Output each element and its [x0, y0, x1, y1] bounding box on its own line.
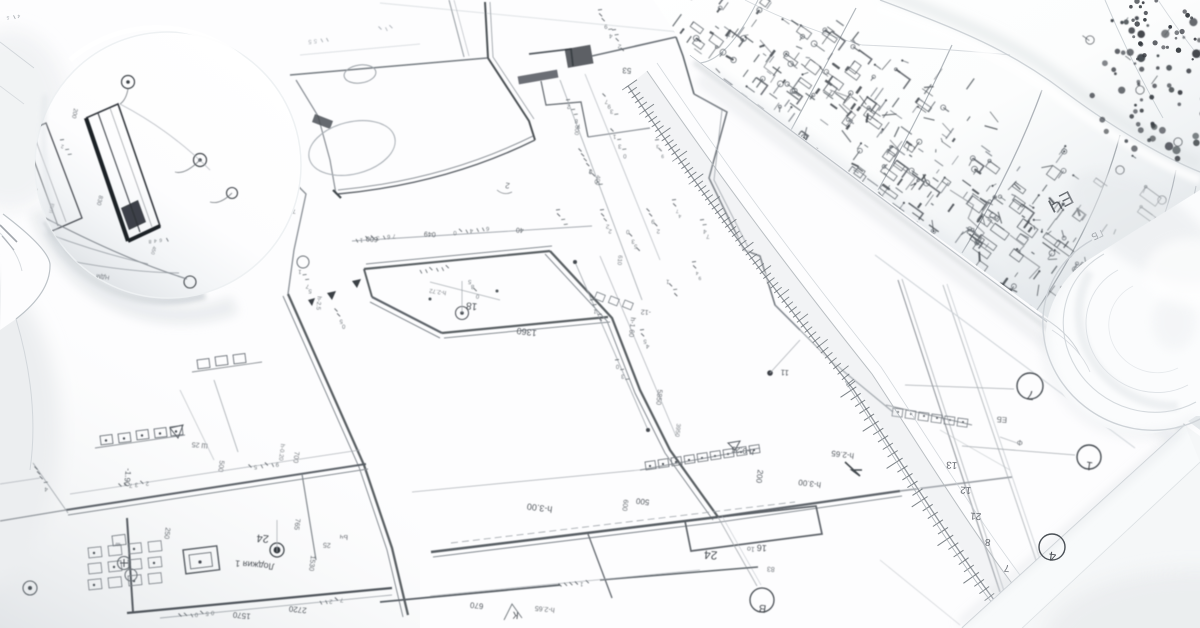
svg-text:049: 049: [424, 230, 436, 238]
svg-text:2720: 2720: [288, 604, 307, 615]
svg-text:24: 24: [256, 531, 269, 544]
svg-text:21: 21: [969, 510, 981, 522]
svg-text:250: 250: [162, 527, 170, 540]
svg-text:500: 500: [635, 496, 650, 507]
svg-text:8: 8: [148, 238, 151, 244]
svg-text:16: 16: [756, 543, 767, 554]
svg-text:83: 83: [767, 565, 775, 573]
svg-text:1o: 1o: [747, 545, 755, 553]
svg-text:13: 13: [945, 459, 957, 471]
svg-text:4: 4: [678, 213, 681, 219]
svg-text:670: 670: [469, 600, 484, 610]
svg-text:h-2.5: h-2.5: [314, 296, 321, 311]
svg-text:ЕБ: ЕБ: [996, 415, 1007, 425]
svg-text:К: К: [512, 609, 519, 620]
svg-text:18: 18: [465, 299, 478, 311]
svg-text:500: 500: [572, 125, 579, 136]
svg-text:700: 700: [291, 451, 299, 464]
svg-text:53: 53: [622, 66, 632, 76]
svg-text:200: 200: [754, 469, 765, 484]
svg-text:25: 25: [323, 541, 331, 549]
svg-text:600: 600: [366, 235, 378, 243]
svg-text:9: 9: [698, 275, 701, 281]
svg-text:11: 11: [780, 368, 789, 378]
svg-text:12: 12: [959, 484, 971, 496]
svg-text:Ьч: Ьч: [339, 533, 348, 541]
svg-text:610: 610: [615, 255, 622, 266]
svg-text:1570: 1570: [232, 610, 251, 621]
svg-text:600: 600: [620, 499, 628, 512]
svg-text:ш: ш: [115, 541, 120, 547]
svg-text:5: 5: [6, 14, 9, 20]
svg-text:3: 3: [656, 143, 659, 149]
svg-text:7: 7: [676, 208, 679, 214]
svg-text:40: 40: [516, 226, 524, 234]
svg-text:-12: -12: [641, 308, 652, 316]
svg-text:765: 765: [292, 518, 300, 531]
svg-text:400: 400: [593, 175, 600, 186]
svg-text:Ф: Ф: [1016, 438, 1023, 447]
